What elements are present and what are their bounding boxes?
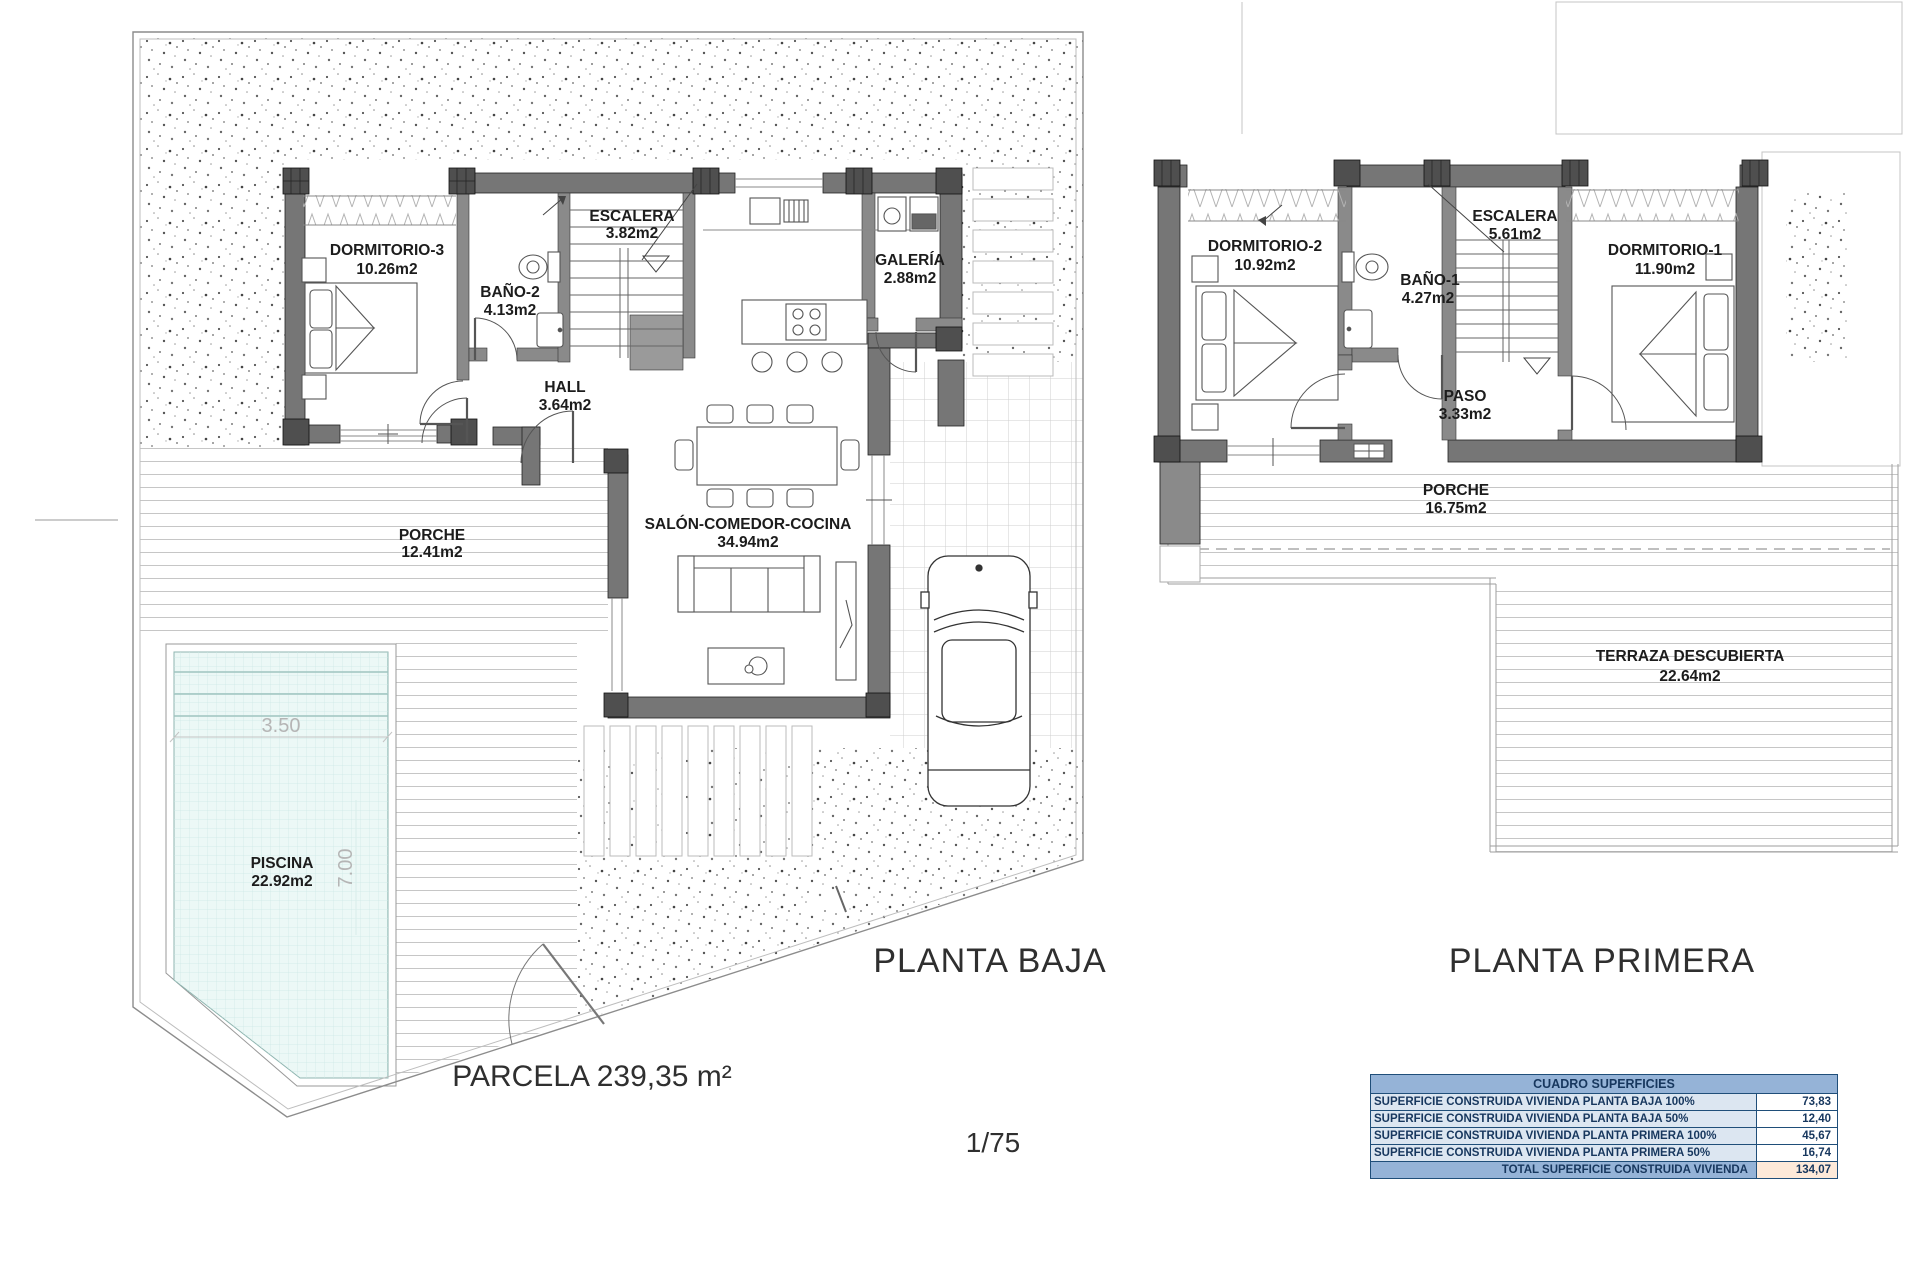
chair	[747, 405, 773, 423]
nightstand	[302, 258, 326, 282]
pillar-base	[1160, 546, 1200, 582]
label-paso-name: PASO	[1444, 388, 1487, 405]
nightstand	[302, 375, 326, 399]
row-value: 12,40	[1757, 1111, 1837, 1127]
porch-pillar	[1160, 452, 1200, 544]
label-porche1-area: 16.75m2	[1425, 500, 1486, 517]
label-escalera-name: ESCALERA	[589, 208, 674, 225]
nightstand	[1192, 256, 1218, 282]
chair	[747, 489, 773, 507]
car-mirror	[1029, 592, 1037, 608]
surfaces-table: CUADRO SUPERFICIES SUPERFICIE CONSTRUIDA…	[1370, 1074, 1838, 1179]
label-paso-area: 3.33m2	[1439, 406, 1492, 423]
label-bano1-area: 4.27m2	[1402, 290, 1455, 307]
label-hall-name: HALL	[544, 379, 585, 396]
total-value: 134,07	[1757, 1162, 1837, 1178]
row-value: 16,74	[1757, 1145, 1837, 1161]
stool	[787, 352, 807, 372]
window-dormitorio2	[1188, 189, 1346, 221]
chair	[707, 489, 733, 507]
chair	[787, 405, 813, 423]
label-terraza-name: TERRAZA DESCUBIERTA	[1596, 648, 1785, 665]
label-piscina-name: PISCINA	[251, 855, 314, 872]
nightstand	[1192, 404, 1218, 430]
gravel-left	[140, 160, 287, 447]
table-row: SUPERFICIE CONSTRUIDA VIVIENDA PLANTA BA…	[1371, 1094, 1837, 1111]
chair	[675, 440, 693, 470]
car	[921, 556, 1037, 806]
label-galeria-name: GALERÍA	[875, 252, 945, 269]
dining-table	[697, 427, 837, 485]
row-value: 73,83	[1757, 1094, 1837, 1110]
parcel-label: PARCELA 239,35 m²	[452, 1060, 732, 1093]
label-bano1-name: BAÑO-1	[1400, 271, 1460, 289]
row-value: 45,67	[1757, 1128, 1837, 1144]
table-row: SUPERFICIE CONSTRUIDA VIVIENDA PLANTA BA…	[1371, 1111, 1837, 1128]
first-floor-title: PLANTA PRIMERA	[1449, 942, 1755, 980]
label-terraza-area: 22.64m2	[1659, 668, 1720, 685]
label-porche-area: 12.41m2	[401, 544, 462, 561]
first-floor-decks	[1160, 452, 1898, 852]
side-terrace-gravel	[1786, 192, 1848, 362]
gravel-top	[140, 38, 1083, 160]
label-galeria-area: 2.88m2	[884, 270, 937, 287]
label-salon-area: 34.94m2	[717, 534, 778, 551]
cooktop-icon	[786, 304, 826, 340]
pool-width-dim: 3.50	[262, 715, 301, 737]
row-label: SUPERFICIE CONSTRUIDA VIVIENDA PLANTA PR…	[1371, 1128, 1757, 1144]
label-porche1-name: PORCHE	[1423, 482, 1489, 499]
stool	[752, 352, 772, 372]
table-row: SUPERFICIE CONSTRUIDA VIVIENDA PLANTA PR…	[1371, 1128, 1837, 1145]
chair	[841, 440, 859, 470]
table-total-row: TOTAL SUPERFICIE CONSTRUIDA VIVIENDA 134…	[1371, 1162, 1837, 1178]
window-dormitorio1	[1566, 189, 1739, 221]
porch-deck-first	[1176, 464, 1898, 578]
sofa	[678, 556, 820, 612]
pergola-slats	[973, 168, 1053, 376]
kitchen-sink-icon	[750, 198, 780, 224]
side-deck	[396, 637, 577, 1080]
car-mirror	[921, 592, 929, 608]
pool-length-dim: 7.00	[335, 849, 357, 888]
ground-floor-title: PLANTA BAJA	[873, 942, 1106, 980]
chair	[707, 405, 733, 423]
label-dormitorio2-area: 10.92m2	[1234, 257, 1295, 274]
stool	[822, 352, 842, 372]
label-bano2-name: BAÑO-2	[480, 283, 539, 301]
label-escalera-area: 3.82m2	[606, 225, 659, 242]
stepping-slats	[584, 726, 812, 856]
label-escalera1-area: 5.61m2	[1489, 226, 1542, 243]
total-label: TOTAL SUPERFICIE CONSTRUIDA VIVIENDA	[1371, 1162, 1757, 1178]
label-piscina-area: 22.92m2	[251, 873, 312, 890]
table-row: SUPERFICIE CONSTRUIDA VIVIENDA PLANTA PR…	[1371, 1145, 1837, 1162]
label-dormitorio1-name: DORMITORIO-1	[1608, 242, 1723, 259]
tv-unit	[836, 562, 856, 680]
label-dormitorio3-area: 10.26m2	[356, 261, 417, 278]
first-floor-plan: DORMITORIO-2 10.92m2 BAÑO-1 4.27m2 ESCAL…	[1154, 2, 1902, 980]
label-dormitorio3-name: DORMITORIO-3	[330, 242, 445, 259]
label-porche-name: PORCHE	[399, 527, 465, 544]
chair	[787, 489, 813, 507]
terraza-deck	[1496, 580, 1892, 852]
label-dormitorio2-name: DORMITORIO-2	[1208, 238, 1322, 255]
row-label: SUPERFICIE CONSTRUIDA VIVIENDA PLANTA BA…	[1371, 1111, 1757, 1127]
floor-plan-page: DORMITORIO-3 10.26m2 BAÑO-2 4.13m2 ESCAL…	[0, 0, 1920, 1280]
scale-label: 1/75	[966, 1127, 1021, 1158]
surfaces-table-header: CUADRO SUPERFICIES	[1371, 1075, 1837, 1094]
toilet-icon	[548, 252, 560, 282]
label-salon-name: SALÓN-COMEDOR-COCINA	[645, 515, 852, 533]
label-dormitorio1-area: 11.90m2	[1635, 261, 1695, 278]
ground-floor-plan: DORMITORIO-3 10.26m2 BAÑO-2 4.13m2 ESCAL…	[35, 32, 1107, 1158]
label-hall-area: 3.64m2	[539, 397, 592, 414]
toilet-icon	[1342, 252, 1354, 282]
label-bano2-area: 4.13m2	[484, 302, 537, 319]
label-escalera1-name: ESCALERA	[1472, 208, 1557, 225]
row-label: SUPERFICIE CONSTRUIDA VIVIENDA PLANTA PR…	[1371, 1145, 1757, 1161]
window-dormitorio3	[303, 195, 456, 225]
row-label: SUPERFICIE CONSTRUIDA VIVIENDA PLANTA BA…	[1371, 1094, 1757, 1110]
